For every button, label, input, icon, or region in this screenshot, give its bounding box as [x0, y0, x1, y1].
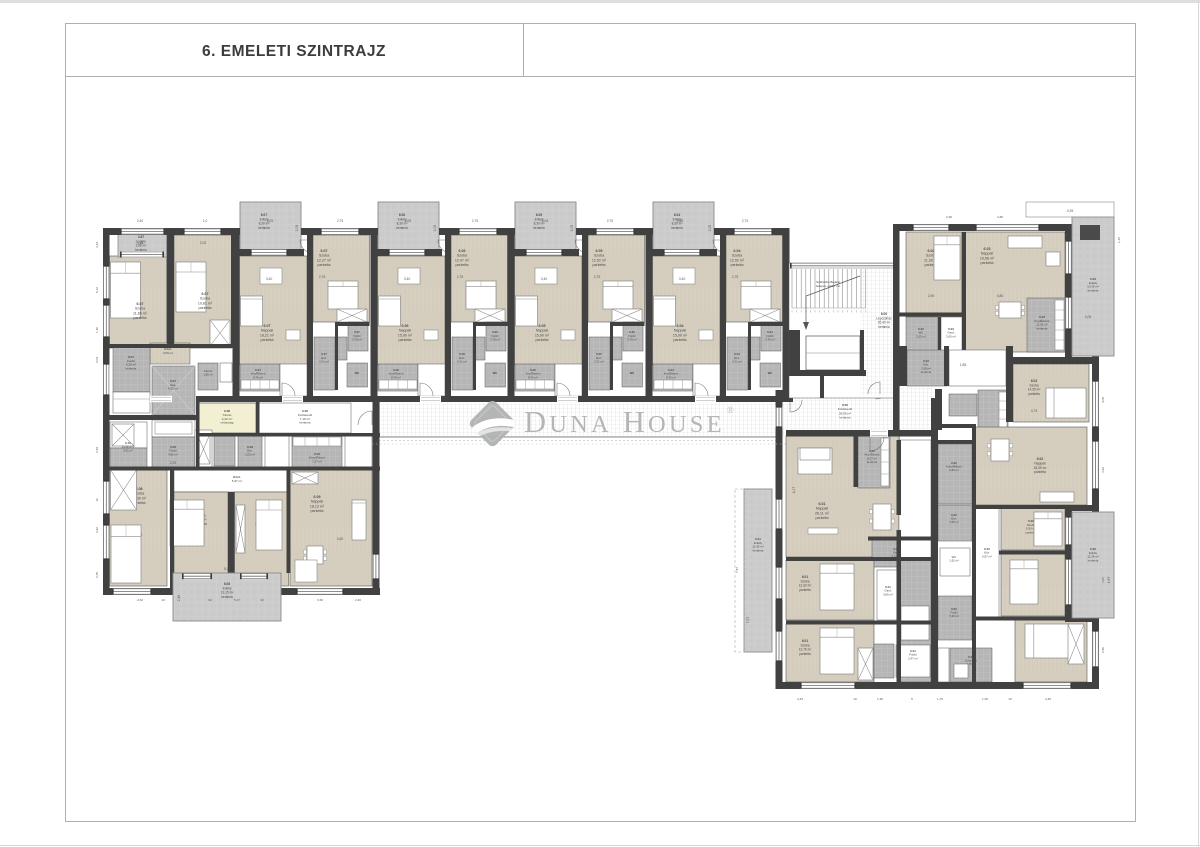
svg-text:2,75: 2,75 [732, 275, 739, 279]
svg-text:2,62: 2,62 [137, 598, 143, 602]
svg-text:10: 10 [1008, 697, 1012, 701]
svg-text:2,75: 2,75 [742, 219, 748, 223]
svg-text:DUNA HOUSE: DUNA HOUSE [524, 405, 725, 439]
svg-text:5,17: 5,17 [234, 598, 240, 602]
svg-text:2,03: 2,03 [95, 357, 99, 363]
svg-text:2,05: 2,05 [433, 225, 437, 232]
svg-text:®: ® [727, 405, 734, 415]
svg-text:3,05: 3,05 [677, 219, 683, 223]
svg-text:3,05: 3,05 [267, 219, 273, 223]
svg-text:10: 10 [95, 498, 99, 502]
svg-text:1,90: 1,90 [877, 697, 883, 701]
svg-text:2,29: 2,29 [95, 447, 99, 453]
svg-text:2,90: 2,90 [928, 294, 935, 298]
svg-text:4,80: 4,80 [997, 215, 1003, 219]
svg-text:2,05: 2,05 [295, 225, 299, 232]
svg-text:2,75: 2,75 [337, 219, 343, 223]
svg-text:3,05: 3,05 [1101, 397, 1105, 403]
svg-text:4,62: 4,62 [1101, 467, 1105, 473]
svg-text:2,29: 2,29 [170, 461, 177, 465]
svg-text:7,57: 7,57 [735, 567, 739, 573]
svg-text:3,05: 3,05 [542, 219, 548, 223]
svg-text:3,40: 3,40 [266, 277, 273, 281]
svg-text:3,40: 3,40 [404, 277, 411, 281]
svg-text:3,60: 3,60 [337, 537, 344, 541]
svg-text:2,40: 2,40 [355, 598, 361, 602]
svg-text:2,02: 2,02 [200, 241, 207, 245]
svg-text:2,75: 2,75 [457, 275, 464, 279]
svg-text:Kamra1,85 m²: Kamra1,85 m² [203, 369, 213, 377]
svg-text:10: 10 [161, 598, 165, 602]
svg-text:4,75: 4,75 [1031, 409, 1038, 413]
svg-text:2,45: 2,45 [177, 595, 181, 602]
svg-text:2,75: 2,75 [607, 219, 613, 223]
svg-text:Közl.5,97 m²: Közl.5,97 m² [232, 475, 243, 483]
svg-text:10: 10 [853, 697, 857, 701]
svg-text:2,62: 2,62 [95, 527, 99, 533]
svg-text:10: 10 [260, 598, 264, 602]
svg-text:7,57: 7,57 [746, 617, 750, 624]
svg-text:2,80: 2,80 [1101, 647, 1105, 653]
svg-text:3,60: 3,60 [317, 598, 323, 602]
svg-text:1,0: 1,0 [203, 219, 208, 223]
svg-text:1,42: 1,42 [1117, 237, 1121, 243]
svg-text:2,05: 2,05 [1085, 315, 1092, 319]
svg-text:2,75: 2,75 [594, 275, 601, 279]
svg-text:4,45: 4,45 [1045, 697, 1051, 701]
svg-text:2,90: 2,90 [946, 215, 952, 219]
svg-text:5,12: 5,12 [137, 241, 144, 245]
svg-text:5: 5 [911, 697, 913, 701]
svg-text:Szabadba Bejáratbelépés +3x17: Szabadba Bejáratbelépés +3x17 cm [816, 280, 841, 288]
svg-text:4,25: 4,25 [1067, 209, 1074, 213]
svg-text:4,80: 4,80 [997, 294, 1004, 298]
svg-text:2,05: 2,05 [708, 225, 712, 232]
svg-text:1,75: 1,75 [937, 697, 943, 701]
svg-text:5,17: 5,17 [224, 567, 231, 571]
svg-text:3,40: 3,40 [541, 277, 548, 281]
svg-text:4,43: 4,43 [797, 697, 803, 701]
svg-text:2,05: 2,05 [570, 225, 574, 232]
svg-text:2,45: 2,45 [95, 572, 99, 578]
svg-text:1,85: 1,85 [960, 363, 967, 367]
svg-text:92: 92 [208, 598, 212, 602]
svg-text:4,97: 4,97 [1101, 577, 1105, 583]
svg-text:2,75: 2,75 [319, 275, 326, 279]
svg-text:1,00: 1,00 [982, 697, 988, 701]
svg-text:4,17: 4,17 [792, 487, 796, 494]
svg-text:3,40: 3,40 [679, 277, 686, 281]
svg-text:2,75: 2,75 [472, 219, 478, 223]
svg-text:5,12: 5,12 [95, 287, 99, 293]
svg-text:6. EMELETI SZINTRAJZ: 6. EMELETI SZINTRAJZ [202, 43, 386, 60]
svg-text:Közl.3,66 m²: Közl.3,66 m² [163, 347, 173, 355]
svg-text:4,43: 4,43 [95, 242, 99, 248]
svg-text:2,40: 2,40 [137, 219, 143, 223]
svg-text:3,05: 3,05 [405, 219, 411, 223]
svg-text:4,97: 4,97 [1107, 577, 1111, 584]
svg-text:1,30: 1,30 [95, 327, 99, 333]
